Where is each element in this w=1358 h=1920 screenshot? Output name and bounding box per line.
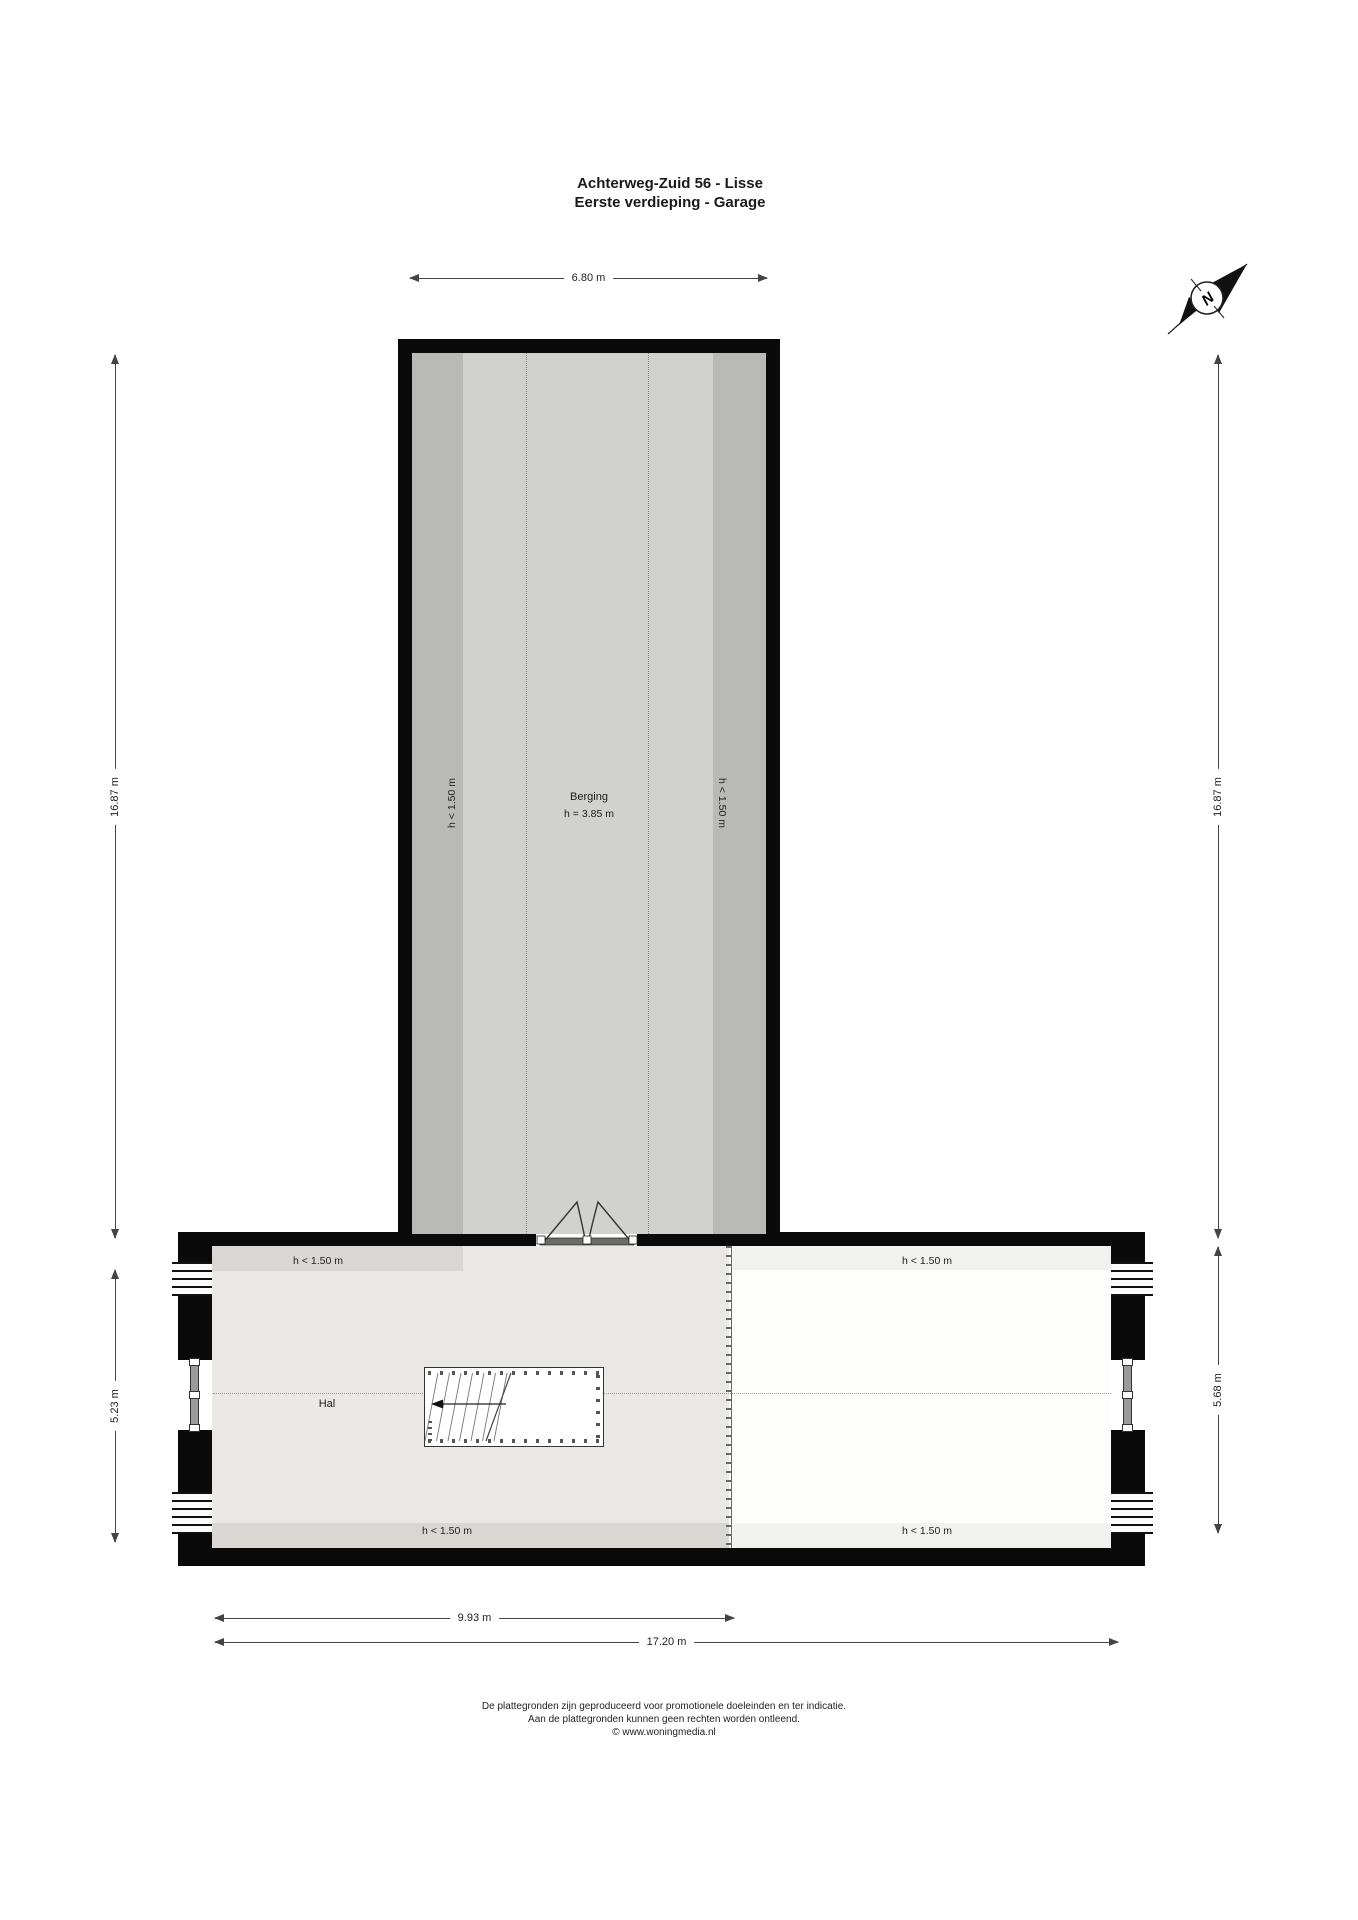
hal-low-top-left-label: h < 1.50 m (293, 1255, 343, 1267)
plan-title-address: Achterweg-Zuid 56 - Lisse (575, 174, 766, 193)
attic-floor-right (733, 1246, 1111, 1548)
hal-ridge-dotted-line (213, 1393, 1111, 1394)
right-door-post-mid (1122, 1391, 1133, 1399)
plan-title-floor: Eerste verdieping - Garage (575, 193, 766, 212)
break-line (731, 1246, 732, 1548)
footer-disclaimer: De plattegronden zijn geproduceerd voor … (264, 1700, 1064, 1739)
footer-line-2: Aan de plattegronden kunnen geen rechten… (264, 1713, 1064, 1726)
berging-low-left-label: h < 1.50 m (446, 778, 458, 828)
staircase (420, 1363, 610, 1453)
hal-room-label: Hal (319, 1398, 336, 1410)
berging-roofline-left (526, 353, 527, 1234)
footer-line-1: De plattegronden zijn geproduceerd voor … (264, 1700, 1064, 1713)
dim-total-width-label: 17.20 m (639, 1636, 695, 1648)
dim-total-height-right-label: 16.87 m (1212, 769, 1224, 825)
berging-room-label: Berging (570, 791, 608, 803)
left-door-post-bottom (189, 1424, 200, 1432)
right-door-post-top (1122, 1358, 1133, 1366)
right-door-post-bottom (1122, 1424, 1133, 1432)
hal-low-bottom-left-label: h < 1.50 m (422, 1525, 472, 1537)
hal-bottom-wall (178, 1548, 1145, 1566)
dim-hal-height-right-label: 5.68 m (1212, 1365, 1224, 1415)
left-door-post-mid (189, 1391, 200, 1399)
footer-copyright: © www.woningmedia.nl (264, 1726, 1064, 1739)
hal-low-bottom-right-label: h < 1.50 m (902, 1525, 952, 1537)
berging-double-door (530, 1190, 650, 1252)
dim-berging-width-label: 6.80 m (564, 272, 614, 284)
hal-top-wall-right (780, 1232, 1145, 1246)
dim-total-height-left-label: 16.87 m (109, 769, 121, 825)
right-wall-window-upper (1109, 1262, 1153, 1296)
left-wall-window-upper (172, 1262, 216, 1296)
berging-low-right-label: h < 1.50 m (716, 778, 728, 828)
left-door-post-top (189, 1358, 200, 1366)
left-wall-window-lower (172, 1492, 216, 1534)
dim-hal-height-left-label: 5.23 m (109, 1381, 121, 1431)
floorplan-page: Achterweg-Zuid 56 - Lisse Eerste verdiep… (0, 0, 1358, 1920)
hal-low-top-right-label: h < 1.50 m (902, 1255, 952, 1267)
right-wall-window-lower (1109, 1492, 1153, 1534)
berging-height-label: h = 3.85 m (564, 808, 614, 820)
break-line-teeth (726, 1246, 731, 1548)
dim-hal-inner-width-label: 9.93 m (450, 1612, 500, 1624)
berging-roofline-right (648, 353, 649, 1234)
plan-title: Achterweg-Zuid 56 - Lisse Eerste verdiep… (575, 174, 766, 212)
compass-north-icon: N (1155, 245, 1265, 355)
